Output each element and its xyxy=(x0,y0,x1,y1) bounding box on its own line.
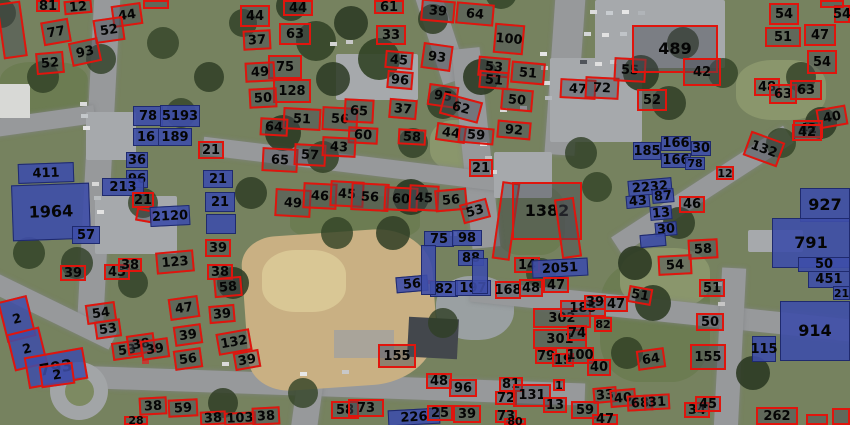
building-annotation: 155 xyxy=(378,344,416,368)
building-annotation: 50 xyxy=(696,313,724,331)
building-label: 45 xyxy=(699,398,717,411)
building-label: 16 xyxy=(137,131,155,144)
building-label: 489 xyxy=(658,41,691,57)
building-label: 51 xyxy=(518,66,537,81)
building-label: 50 xyxy=(701,316,719,329)
building-label: 47 xyxy=(596,413,614,425)
building-label: 50 xyxy=(254,91,273,105)
building-label: 185 xyxy=(633,145,660,158)
building-annotation: 37 xyxy=(388,98,418,120)
building-label: 100 xyxy=(495,31,523,46)
building-annotation: 65 xyxy=(343,98,374,124)
building-label: 56 xyxy=(441,193,460,208)
building-annotation: 43 xyxy=(625,194,650,209)
building-annotation: 38 xyxy=(200,410,227,425)
building-annotation: 21 xyxy=(833,286,850,300)
building-label: 25 xyxy=(431,407,449,420)
building-label: 52 xyxy=(99,22,119,37)
building-annotation: 51 xyxy=(627,285,654,306)
building-label: 38 xyxy=(257,409,276,423)
building-annotation: 39 xyxy=(205,239,231,257)
building-annotation: 52 xyxy=(35,51,65,75)
building-label: 47 xyxy=(607,298,625,311)
building-label: 87 xyxy=(653,189,672,204)
building-label: 13 xyxy=(546,399,564,412)
building-annotation: 51 xyxy=(699,279,725,297)
building-annotation: 39 xyxy=(208,304,235,324)
building-label: 411 xyxy=(32,166,60,180)
building-annotation: 262 xyxy=(756,407,798,425)
building-annotation: 47 xyxy=(592,414,618,425)
building-annotation: 411 xyxy=(18,162,75,184)
building-annotation: 21 xyxy=(132,192,154,208)
building-annotation: 39 xyxy=(173,323,204,347)
building-annotation: 16 xyxy=(133,128,159,146)
building-label: 51 xyxy=(484,73,503,88)
building-label: 46 xyxy=(683,198,701,211)
building-label: 132 xyxy=(219,333,248,351)
building-annotation: 5193 xyxy=(160,105,200,127)
building-label: 451 xyxy=(815,273,842,286)
building-annotation: 30 xyxy=(691,141,711,156)
building-annotation: 63 xyxy=(790,80,822,100)
building-label: 54 xyxy=(833,8,850,21)
building-annotation: 155 xyxy=(690,344,726,370)
building-label: 52 xyxy=(40,56,59,71)
building-label: 128 xyxy=(278,85,305,98)
building-label: 49 xyxy=(284,196,303,210)
building-label: 166 xyxy=(662,137,689,150)
building-annotation: 54 xyxy=(769,3,799,25)
building-annotation: 33 xyxy=(376,25,406,45)
building-annotation: 52 xyxy=(637,89,667,111)
building-label: 2 xyxy=(21,342,33,357)
building-annotation: 58 xyxy=(213,276,243,298)
building-label: 189 xyxy=(161,131,188,144)
building-annotation: 64 xyxy=(636,347,667,371)
building-annotation: 81 xyxy=(36,0,60,12)
building-label: 48 xyxy=(430,375,448,388)
building-label: 65 xyxy=(271,153,290,167)
building-label: 62 xyxy=(451,99,472,116)
building-annotation: 21 xyxy=(203,170,233,188)
building-label: 12 xyxy=(717,168,732,179)
building-annotation: 50 xyxy=(248,87,277,108)
building-annotation xyxy=(832,408,850,425)
building-annotation: 92 xyxy=(496,120,531,141)
building-annotation: 40 xyxy=(587,359,611,376)
building-label: 75 xyxy=(276,61,294,74)
building-annotation: 58 xyxy=(398,128,427,145)
building-label: 131 xyxy=(518,389,545,402)
building-annotation: 39 xyxy=(453,405,481,423)
building-annotation: 12 xyxy=(716,166,734,180)
building-label: 54 xyxy=(813,56,831,69)
building-annotation xyxy=(639,233,666,248)
building-annotation: 38 xyxy=(139,396,168,415)
building-label: 38 xyxy=(144,399,163,413)
building-label: 58 xyxy=(403,130,422,144)
building-label: 44 xyxy=(289,2,307,15)
building-label: 64 xyxy=(465,7,484,22)
building-label: 65 xyxy=(350,104,369,118)
building-annotation: 74 xyxy=(567,325,587,341)
building-label: 39 xyxy=(178,327,198,342)
building-label: 44 xyxy=(246,10,264,23)
building-label: 38 xyxy=(121,259,139,272)
building-label: 39 xyxy=(209,242,227,255)
building-annotation: 2 xyxy=(39,362,76,389)
building-label: 155 xyxy=(694,351,721,364)
building-label: 39 xyxy=(212,307,231,322)
building-annotation: 51 xyxy=(765,27,801,47)
building-label: 21 xyxy=(472,162,490,175)
building-annotation: 64 xyxy=(260,117,289,136)
building-annotation: 47 xyxy=(543,277,569,293)
building-label: 1964 xyxy=(28,203,73,221)
building-label: 115 xyxy=(750,343,777,356)
building-annotation: 59 xyxy=(457,125,494,145)
building-label: 39 xyxy=(145,341,165,356)
building-label: 28 xyxy=(128,415,143,425)
building-annotation: 166 xyxy=(661,136,691,151)
building-label: 60 xyxy=(354,129,373,143)
building-annotation: 44 xyxy=(240,5,270,27)
building-label: 21 xyxy=(202,144,220,157)
building-label: 21 xyxy=(211,196,229,209)
building-label: 53 xyxy=(465,202,486,219)
building-label: 50 xyxy=(815,258,833,271)
building-label: 36 xyxy=(128,154,146,167)
building-label: 132 xyxy=(749,138,779,159)
building-annotation: 57 xyxy=(72,226,100,244)
building-label: 49 xyxy=(251,65,270,79)
building-annotation: 77 xyxy=(40,18,72,46)
building-label: 53 xyxy=(98,321,118,336)
building-label: 57 xyxy=(301,148,320,162)
building-annotation: 185 xyxy=(633,142,661,160)
building-label: 56 xyxy=(361,190,380,204)
building-annotation: 48 xyxy=(519,279,543,297)
building-annotation: 168 xyxy=(495,281,521,299)
building-label: 92 xyxy=(504,123,523,138)
building-label: 12 xyxy=(68,0,87,14)
building-label: 45 xyxy=(415,191,434,205)
building-label: 40 xyxy=(822,109,842,125)
building-label: 51 xyxy=(630,288,650,304)
building-annotation: 12 xyxy=(63,0,92,15)
building-label: 78 xyxy=(687,158,702,169)
building-annotation xyxy=(421,245,436,295)
building-label: 155 xyxy=(383,350,410,363)
building-label: 33 xyxy=(382,29,400,42)
building-annotation: 56 xyxy=(173,347,204,371)
building-label: 48 xyxy=(522,282,540,295)
building-annotation: 49 xyxy=(244,61,275,83)
building-label: 39 xyxy=(237,352,257,368)
building-label: 21 xyxy=(834,288,849,299)
building-annotation: 78 xyxy=(685,157,705,170)
building-annotation xyxy=(806,414,828,425)
building-annotation: 128 xyxy=(273,79,311,103)
building-label: 74 xyxy=(568,327,586,340)
building-annotation xyxy=(206,214,236,234)
building-label: 226 xyxy=(400,410,428,424)
building-label: 63 xyxy=(797,84,815,97)
building-label: 39 xyxy=(458,408,476,421)
building-label: 30 xyxy=(692,142,710,155)
annotation-layer: 8112447752935244446337613345967512849505… xyxy=(0,0,850,425)
building-annotation: 36 xyxy=(126,152,148,168)
building-label: 56 xyxy=(402,277,421,292)
building-label: 43 xyxy=(628,194,647,209)
building-annotation: 50 xyxy=(798,257,850,272)
building-annotation: 21 xyxy=(469,159,493,177)
building-label: 51 xyxy=(703,282,721,295)
building-label: 103 xyxy=(226,411,254,425)
building-label: 2 xyxy=(11,312,23,327)
building-annotation: 31 xyxy=(644,393,671,410)
building-annotation xyxy=(0,1,28,60)
building-label: 46 xyxy=(311,189,330,203)
building-annotation: 123 xyxy=(155,249,195,274)
building-label: 50 xyxy=(507,93,526,108)
building-label: 52 xyxy=(643,94,661,107)
building-label: 63 xyxy=(286,28,304,41)
building-annotation: 21 xyxy=(205,192,235,212)
building-label: 96 xyxy=(454,382,472,395)
building-annotation: 96 xyxy=(449,379,477,397)
building-label: 72 xyxy=(593,81,612,95)
building-label: 78 xyxy=(139,110,157,123)
building-label: 21 xyxy=(209,173,227,186)
building-label: 37 xyxy=(248,33,267,47)
building-annotation: 93 xyxy=(68,37,102,67)
building-annotation: 28 xyxy=(124,416,148,425)
building-annotation: 54 xyxy=(807,50,837,74)
building-annotation: 25 xyxy=(427,405,453,421)
building-annotation: 115 xyxy=(752,336,776,362)
building-annotation: 100 xyxy=(493,23,526,56)
building-label: 914 xyxy=(798,323,831,339)
building-label: 54 xyxy=(91,305,111,320)
building-annotation: 61 xyxy=(374,0,404,14)
building-label: 60 xyxy=(392,192,411,206)
building-label: 47 xyxy=(174,300,194,315)
building-annotation: 46 xyxy=(679,196,705,213)
building-label: 47 xyxy=(547,279,565,292)
building-label: 77 xyxy=(46,24,66,40)
building-label: 81 xyxy=(39,0,57,13)
building-label: 57 xyxy=(77,229,95,242)
building-label: 96 xyxy=(390,73,409,88)
building-annotation: 44 xyxy=(283,0,313,16)
building-label: 39 xyxy=(428,4,447,19)
building-label: 73 xyxy=(357,402,375,415)
building-label: 93 xyxy=(427,49,447,64)
building-label: 56 xyxy=(178,351,198,366)
building-label: 82 xyxy=(435,283,453,296)
building-annotation: 80 xyxy=(504,418,526,425)
building-annotation xyxy=(143,0,169,9)
building-annotation: 53 xyxy=(94,318,122,339)
building-label: 82 xyxy=(595,319,610,330)
building-label: 2 xyxy=(52,368,63,382)
building-label: 5193 xyxy=(162,110,198,123)
building-label: 64 xyxy=(641,351,661,366)
building-label: 98 xyxy=(458,232,476,245)
building-annotation: 914 xyxy=(780,301,850,361)
building-annotation: 1 xyxy=(553,379,565,391)
building-label: 54 xyxy=(775,8,793,21)
building-label: 80 xyxy=(507,416,522,425)
building-annotation: 38 xyxy=(252,406,281,425)
building-annotation: 2120 xyxy=(150,205,191,227)
building-annotation: 58 xyxy=(687,238,718,260)
building-annotation xyxy=(820,0,844,8)
building-label: 58 xyxy=(218,280,237,295)
building-label: 2120 xyxy=(152,209,189,224)
building-label: 58 xyxy=(694,242,713,256)
building-annotation: 45 xyxy=(384,50,413,70)
building-annotation: 21 xyxy=(198,141,224,159)
building-annotation: 93 xyxy=(420,42,453,72)
building-label: 51 xyxy=(293,112,312,126)
building-label: 39 xyxy=(586,296,604,309)
building-annotation: 64 xyxy=(455,1,495,26)
building-annotation: 39 xyxy=(233,349,262,371)
building-label: 927 xyxy=(808,197,841,213)
building-annotation: 51 xyxy=(510,61,546,86)
building-label: 59 xyxy=(174,401,193,415)
building-label: 59 xyxy=(466,128,485,143)
building-annotation: 50 xyxy=(500,88,534,113)
building-label: 13 xyxy=(651,206,670,221)
building-annotation: 47 xyxy=(168,295,201,321)
building-annotation: 39 xyxy=(60,265,86,281)
building-annotation: 39 xyxy=(584,295,606,310)
building-annotation: 45 xyxy=(695,396,721,412)
building-label: 2051 xyxy=(542,261,579,276)
building-label: 54 xyxy=(666,258,685,272)
building-annotation: 43 xyxy=(321,136,356,158)
building-annotation: 96 xyxy=(386,70,413,90)
building-annotation: 63 xyxy=(279,23,311,45)
building-annotation: 38 xyxy=(118,258,142,272)
building-label: 791 xyxy=(794,235,827,251)
building-annotation: 59 xyxy=(168,398,199,418)
building-annotation: 87 xyxy=(651,188,674,204)
building-label: 1 xyxy=(555,380,563,391)
building-annotation: 78 xyxy=(133,106,163,126)
building-label: 21 xyxy=(134,194,152,207)
building-annotation: 98 xyxy=(452,230,482,246)
building-annotation: 927 xyxy=(800,188,850,222)
building-label: 51 xyxy=(774,31,792,44)
building-annotation: 54 xyxy=(657,254,692,276)
building-label: 168 xyxy=(494,284,521,297)
building-label: 43 xyxy=(330,140,349,154)
building-annotation: 39 xyxy=(420,0,456,23)
building-label: 47 xyxy=(811,29,829,42)
building-annotation: 42 xyxy=(683,58,721,86)
building-label: 64 xyxy=(265,120,284,134)
building-annotation: 13 xyxy=(649,205,672,221)
building-annotation: 39 xyxy=(140,337,171,361)
building-label: 75 xyxy=(430,233,448,246)
building-annotation: 189 xyxy=(158,128,192,146)
building-annotation: 47 xyxy=(804,24,836,46)
building-annotation: 13 xyxy=(543,397,567,413)
building-annotation: 42 xyxy=(792,124,822,141)
building-annotation: 2051 xyxy=(532,258,589,279)
building-label: 31 xyxy=(648,395,667,409)
building-label: 40 xyxy=(590,361,608,374)
building-annotation: 62 xyxy=(439,92,483,124)
building-annotation: 37 xyxy=(242,29,271,50)
building-label: 38 xyxy=(204,411,223,425)
building-label: 93 xyxy=(75,44,95,60)
building-annotation: 47 xyxy=(604,296,628,312)
building-annotation: 82 xyxy=(594,317,612,332)
building-annotation: 73 xyxy=(348,399,384,417)
building-label: 42 xyxy=(693,66,711,79)
building-label: 45 xyxy=(389,53,408,68)
building-label: 123 xyxy=(161,254,189,269)
building-label: 262 xyxy=(763,410,790,423)
aerial-map[interactable]: 8112447752935244446337613345967512849505… xyxy=(0,0,850,425)
building-annotation: 132 xyxy=(743,131,786,168)
building-label: 61 xyxy=(380,1,398,14)
building-annotation xyxy=(472,258,488,294)
building-label: 42 xyxy=(798,126,816,139)
building-label: 37 xyxy=(393,102,412,117)
building-label: 39 xyxy=(64,267,82,280)
